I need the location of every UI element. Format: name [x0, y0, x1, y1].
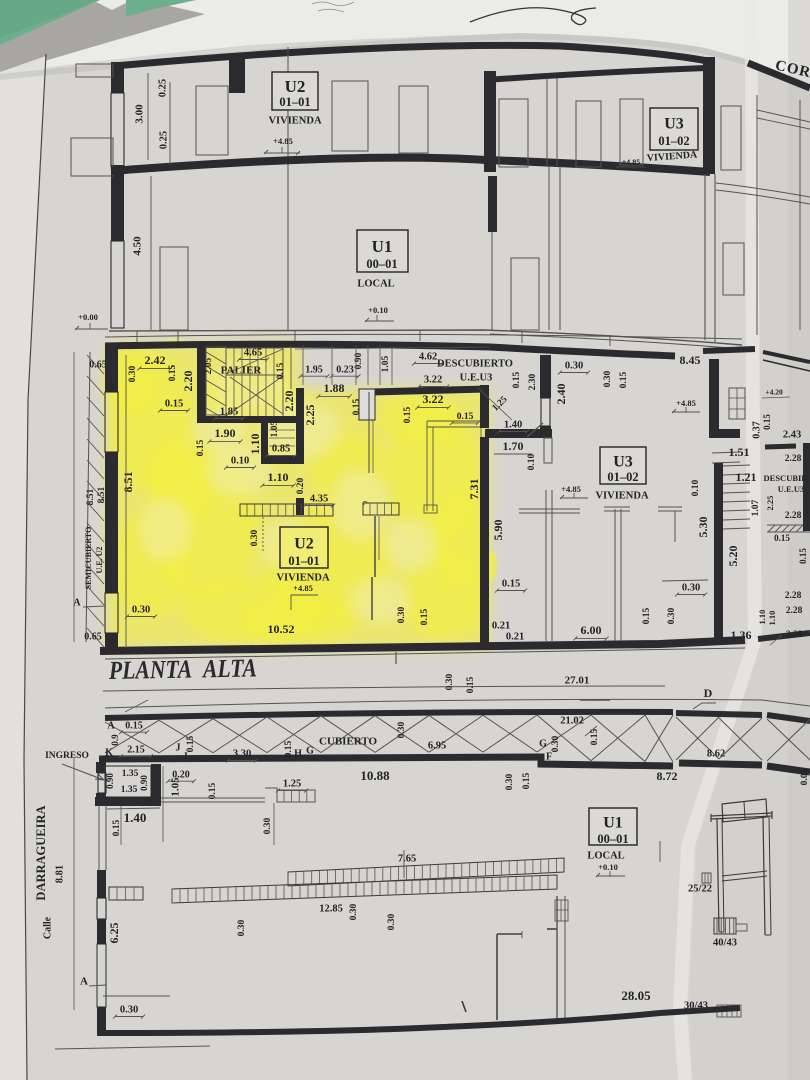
svg-text:2.05: 2.05	[204, 357, 214, 374]
svg-text:12.85: 12.85	[319, 903, 343, 914]
svg-text:1.51: 1.51	[729, 445, 750, 459]
svg-text:1.35: 1.35	[121, 785, 138, 795]
svg-text:00–01: 00–01	[366, 257, 397, 271]
svg-text:CUBIERTO: CUBIERTO	[319, 736, 378, 748]
svg-text:0.85: 0.85	[272, 443, 290, 454]
svg-text:INGRESO: INGRESO	[45, 751, 89, 761]
svg-text:0.30: 0.30	[397, 606, 407, 623]
svg-text:2.28: 2.28	[785, 591, 802, 601]
svg-text:0.15: 0.15	[168, 364, 178, 381]
svg-text:0.15: 0.15	[590, 728, 600, 745]
svg-text:8.45: 8.45	[680, 353, 701, 367]
svg-text:0.15: 0.15	[352, 398, 362, 415]
svg-text:4.35: 4.35	[310, 493, 328, 504]
svg-text:0.15: 0.15	[762, 414, 772, 430]
svg-text:00–01: 00–01	[597, 832, 628, 846]
svg-text:5.90: 5.90	[491, 520, 505, 541]
svg-text:2.20: 2.20	[181, 371, 195, 392]
svg-text:0.30: 0.30	[565, 360, 583, 371]
svg-text:1.88: 1.88	[324, 381, 345, 395]
svg-text:8.51: 8.51	[86, 488, 96, 505]
svg-text:0.15: 0.15	[196, 439, 206, 456]
svg-text:A: A	[80, 976, 88, 988]
svg-text:U2: U2	[285, 77, 306, 96]
svg-text:0.30: 0.30	[603, 370, 613, 387]
svg-text:+4.85: +4.85	[622, 158, 641, 167]
svg-text:+0.00: +0.00	[78, 312, 98, 322]
svg-text:1.35: 1.35	[122, 769, 139, 779]
svg-text:0.15: 0.15	[619, 371, 629, 388]
svg-text:DESCUBIERTO: DESCUBIERTO	[437, 358, 513, 369]
svg-text:0.20: 0.20	[296, 477, 306, 494]
svg-text:01–01: 01–01	[288, 554, 319, 568]
svg-text:1.36: 1.36	[731, 628, 752, 642]
svg-text:1.05: 1.05	[270, 420, 280, 437]
svg-text:2.40: 2.40	[554, 384, 568, 405]
svg-text:25/22: 25/22	[688, 883, 712, 894]
svg-text:2.20: 2.20	[282, 391, 296, 412]
svg-text:1.90: 1.90	[215, 426, 236, 440]
svg-text:1.21: 1.21	[736, 470, 757, 484]
svg-text:0.30: 0.30	[250, 529, 260, 546]
svg-text:0.90: 0.90	[139, 775, 149, 791]
svg-text:1.07: 1.07	[751, 499, 761, 516]
svg-text:2.28: 2.28	[786, 606, 803, 616]
svg-text:+4.20: +4.20	[765, 388, 783, 397]
svg-text:0.30: 0.30	[263, 817, 273, 834]
svg-text:Calle: Calle	[42, 916, 53, 939]
svg-text:+4.85: +4.85	[293, 583, 313, 593]
svg-text:6.00: 6.00	[581, 623, 602, 637]
svg-text:2.28: 2.28	[785, 511, 802, 521]
svg-text:LOCAL: LOCAL	[587, 850, 624, 861]
svg-text:+4.85: +4.85	[676, 398, 696, 408]
svg-text:8.51: 8.51	[121, 472, 135, 493]
svg-text:0.05: 0.05	[800, 768, 810, 785]
svg-text:0.9: 0.9	[110, 734, 120, 746]
svg-text:0.30: 0.30	[387, 913, 397, 930]
svg-text:01–02: 01–02	[658, 134, 689, 148]
svg-text:0.30: 0.30	[551, 735, 561, 752]
svg-text:U1: U1	[603, 815, 623, 832]
svg-text:4.65: 4.65	[244, 347, 262, 358]
svg-text:SEMICUBIERTO: SEMICUBIERTO	[84, 527, 93, 590]
svg-text:U3: U3	[664, 116, 684, 133]
svg-text:VIVIENDA: VIVIENDA	[595, 490, 649, 501]
svg-text:1.95: 1.95	[305, 364, 323, 375]
svg-text:0.25: 0.25	[157, 79, 168, 97]
svg-text:0.30: 0.30	[349, 903, 359, 920]
svg-text:2.28: 2.28	[785, 454, 802, 464]
svg-text:1.10: 1.10	[767, 611, 777, 626]
svg-text:0.30: 0.30	[505, 773, 515, 790]
svg-text:U1: U1	[372, 237, 393, 256]
svg-text:28.05: 28.05	[621, 988, 651, 1003]
svg-text:+4.85: +4.85	[561, 484, 581, 494]
svg-text:5.20: 5.20	[726, 546, 740, 567]
svg-text:2.43: 2.43	[783, 429, 801, 440]
svg-text:U3: U3	[613, 454, 633, 471]
svg-text:0.65: 0.65	[89, 359, 107, 370]
svg-text:0.90: 0.90	[105, 773, 115, 789]
svg-text:2.30: 2.30	[528, 373, 538, 390]
svg-text:01–02: 01–02	[607, 470, 638, 484]
svg-text:0.15: 0.15	[186, 735, 196, 752]
svg-text:LOCAL: LOCAL	[357, 278, 394, 289]
svg-text:0.23: 0.23	[336, 364, 354, 375]
svg-text:1.10: 1.10	[757, 610, 767, 625]
svg-text:01–01: 01–01	[279, 95, 310, 109]
svg-text:3.22: 3.22	[423, 392, 444, 406]
svg-text:0.30: 0.30	[667, 607, 677, 624]
svg-text:0.15: 0.15	[502, 578, 520, 589]
svg-text:4.50: 4.50	[132, 236, 144, 256]
svg-text:5.30: 5.30	[696, 517, 710, 538]
svg-text:3.22: 3.22	[424, 374, 442, 385]
svg-text:0.37: 0.37	[751, 421, 762, 439]
svg-text:0.30: 0.30	[397, 721, 407, 738]
svg-text:0.30: 0.30	[128, 365, 138, 382]
svg-text:0.10: 0.10	[527, 453, 537, 470]
svg-text:3.00: 3.00	[134, 104, 146, 124]
svg-text:H: H	[294, 748, 302, 759]
svg-text:2.15: 2.15	[127, 744, 145, 755]
svg-text:0.15: 0.15	[512, 371, 522, 388]
svg-text:J: J	[176, 742, 181, 753]
svg-text:1.10: 1.10	[248, 434, 262, 455]
svg-text:3.30: 3.30	[233, 748, 251, 759]
svg-text:0.25: 0.25	[158, 131, 169, 149]
svg-text:K: K	[105, 747, 113, 758]
svg-text:8.72: 8.72	[657, 769, 678, 783]
svg-text:0.30: 0.30	[237, 919, 247, 936]
svg-text:0.15: 0.15	[774, 533, 790, 543]
svg-text:1.05: 1.05	[170, 777, 182, 797]
svg-text:1.40: 1.40	[504, 419, 522, 430]
svg-text:8.81: 8.81	[54, 865, 65, 883]
svg-text:G: G	[539, 738, 547, 749]
svg-text:U.E.U3: U.E.U3	[460, 372, 493, 383]
svg-text:0.15: 0.15	[125, 720, 143, 731]
svg-text:0.15: 0.15	[208, 782, 218, 799]
svg-text:DARRAGUEIRA: DARRAGUEIRA	[34, 805, 48, 900]
svg-text:U2: U2	[294, 536, 314, 553]
svg-text:VIVIENDA: VIVIENDA	[268, 115, 322, 126]
svg-text:0.15: 0.15	[522, 772, 532, 789]
svg-text:0.15: 0.15	[284, 740, 294, 757]
svg-text:8.51: 8.51	[97, 486, 107, 503]
svg-text:0.15: 0.15	[276, 362, 286, 379]
svg-text:D: D	[704, 686, 713, 700]
svg-text:0.15: 0.15	[112, 819, 122, 836]
svg-text:0.10: 0.10	[231, 455, 249, 466]
svg-text:0.21: 0.21	[492, 620, 510, 631]
svg-text:40/43: 40/43	[713, 937, 737, 948]
svg-text:1.25: 1.25	[283, 778, 301, 789]
svg-text:1.10: 1.10	[268, 470, 289, 484]
svg-text:10.52: 10.52	[268, 622, 295, 636]
svg-text:27.01: 27.01	[565, 675, 590, 687]
svg-text:1.05: 1.05	[381, 355, 391, 372]
svg-text:1.40: 1.40	[124, 810, 147, 825]
svg-text:2.25: 2.25	[765, 496, 775, 511]
svg-text:8.62: 8.62	[707, 748, 725, 759]
svg-text:0.15: 0.15	[642, 607, 652, 624]
svg-text:0.65: 0.65	[84, 631, 102, 642]
svg-text:A: A	[107, 720, 115, 731]
svg-text:6.25: 6.25	[107, 923, 121, 944]
svg-text:U.E.U3: U.E.U3	[778, 484, 804, 494]
svg-text:PLANTA ALTA: PLANTA ALTA	[108, 653, 257, 685]
svg-text:2.28: 2.28	[786, 630, 803, 640]
svg-text:0.10: 0.10	[691, 479, 701, 496]
svg-text:0.15: 0.15	[798, 548, 808, 564]
svg-text:+4.85: +4.85	[273, 136, 293, 146]
svg-text:7.31: 7.31	[467, 479, 481, 500]
svg-text:0.15: 0.15	[165, 398, 183, 409]
svg-text:10.88: 10.88	[360, 768, 390, 783]
svg-text:6.95: 6.95	[428, 740, 446, 751]
svg-text:+0.10: +0.10	[368, 305, 388, 315]
svg-text:U.E. U2: U.E. U2	[95, 547, 104, 574]
svg-text:0.30: 0.30	[132, 604, 150, 615]
svg-text:1.70: 1.70	[503, 439, 524, 453]
svg-text:A: A	[73, 597, 81, 608]
svg-text:G: G	[306, 745, 314, 756]
svg-text:4.62: 4.62	[419, 351, 437, 362]
svg-text:0.15: 0.15	[403, 406, 413, 423]
svg-text:0.30: 0.30	[120, 1004, 138, 1015]
svg-text:PALIER: PALIER	[221, 365, 263, 377]
svg-text:21.02: 21.02	[560, 715, 584, 726]
svg-text:1.85: 1.85	[220, 406, 238, 417]
svg-text:0.30: 0.30	[682, 582, 700, 593]
svg-text:0.15: 0.15	[457, 412, 474, 422]
svg-text:VIVIENDA: VIVIENDA	[276, 572, 330, 583]
svg-text:F: F	[546, 751, 552, 762]
svg-text:+0.10: +0.10	[598, 862, 618, 872]
svg-text:0.21: 0.21	[506, 631, 524, 642]
svg-text:2.42: 2.42	[145, 353, 166, 367]
svg-text:0.30: 0.30	[445, 673, 455, 690]
svg-text:7.65: 7.65	[398, 853, 416, 864]
svg-text:0.15: 0.15	[466, 676, 476, 693]
svg-text:0.15: 0.15	[420, 608, 430, 625]
svg-text:2.25: 2.25	[303, 405, 317, 426]
